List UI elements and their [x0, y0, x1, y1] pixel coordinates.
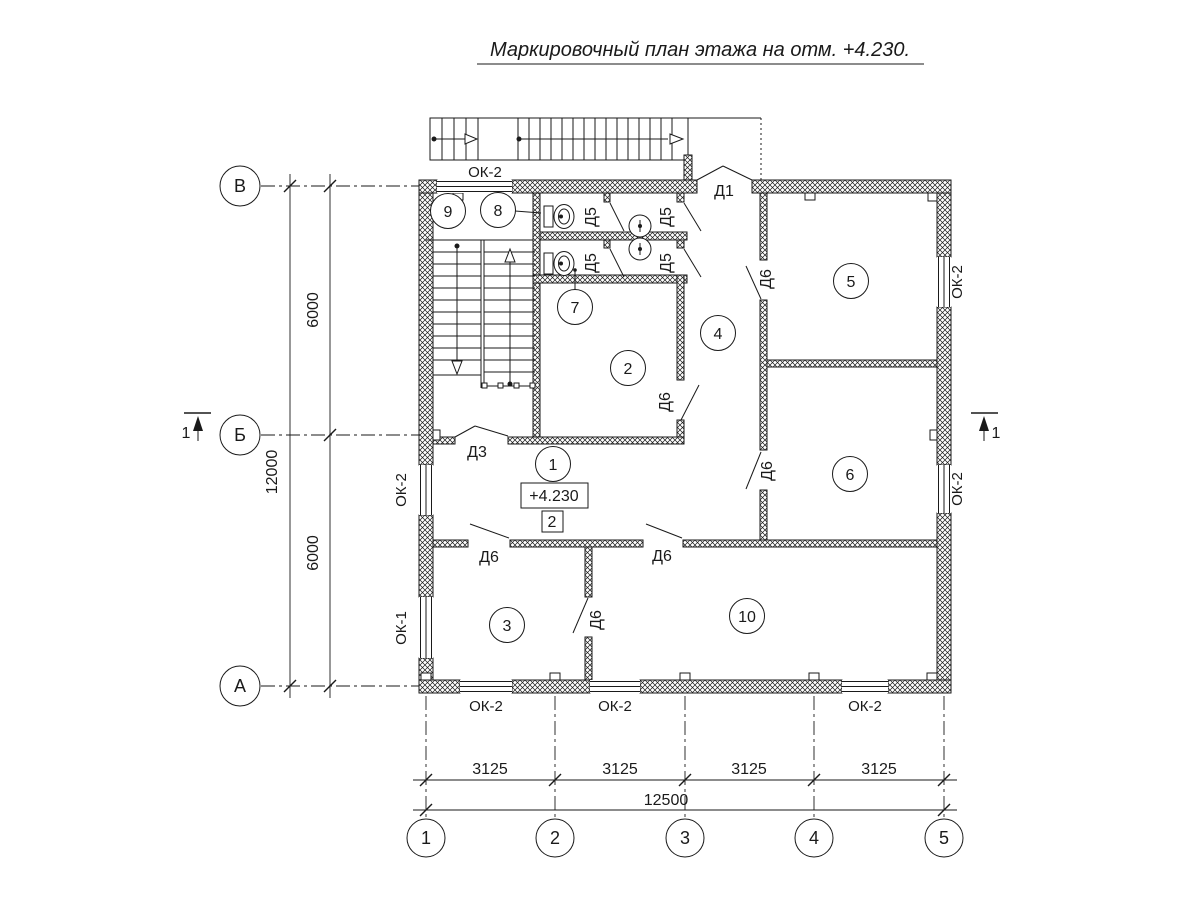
section-mark-right: 1: [971, 413, 1001, 442]
room-marker-2: 2: [611, 351, 646, 386]
dim-h-seg-4: 3125: [861, 761, 897, 778]
dim-vertical-total: 12000: [264, 450, 281, 495]
toilet-upper: [544, 205, 574, 229]
door-d6-room3-top: Д6: [470, 524, 509, 566]
col-axis-label: 2: [550, 828, 560, 848]
window-label-ok2-right-lower: ОК-2: [949, 472, 966, 506]
level-mark: +4.230: [521, 483, 588, 508]
room-marker-6: 6: [833, 457, 868, 492]
room-number: 10: [738, 609, 756, 626]
room-marker-9: 9: [431, 194, 466, 229]
door-label-d5: Д5: [583, 207, 600, 227]
zone-mark-value: 2: [548, 514, 557, 531]
col-axis-bubble-4: 4: [795, 819, 833, 857]
drawing-title: Маркировочный план этажа на отм. +4.230.: [490, 39, 910, 61]
basin-lower: [629, 238, 651, 260]
room-number: 8: [494, 203, 503, 220]
door-label-d6: Д6: [759, 461, 776, 481]
window-ok2-bottom-1: [460, 680, 512, 693]
room-number: 4: [714, 326, 723, 343]
col-axis-label: 1: [421, 828, 431, 848]
door-d1: Д1: [697, 166, 752, 200]
row-axis-bubble-a: А: [220, 666, 260, 706]
zone-mark: 2: [542, 511, 563, 532]
door-label-d5: Д5: [583, 253, 600, 273]
window-ok2-bottom-3: [842, 680, 888, 693]
door-d5-wc-lower-inner: Д5: [583, 249, 624, 277]
room-marker-10: 10: [730, 599, 765, 634]
floor-plan-drawing: Маркировочный план этажа на отм. +4.230.: [0, 0, 1200, 900]
internal-staircase: [426, 240, 535, 388]
floor-plan-page: Маркировочный план этажа на отм. +4.230.: [0, 0, 1200, 900]
room-number: 2: [624, 361, 633, 378]
col-axis-bubble-3: 3: [666, 819, 704, 857]
room-marker-5: 5: [834, 264, 869, 299]
col-axis-label: 4: [809, 828, 819, 848]
internal-stair-treads: [433, 240, 535, 388]
col-axis-bubble-1: 1: [407, 819, 445, 857]
window-ok2-left: [419, 465, 433, 515]
door-label-d6: Д6: [588, 610, 605, 630]
window-label-ok2-left: ОК-2: [393, 473, 410, 507]
row-axis-label: Б: [234, 425, 246, 445]
dim-h-seg-1: 3125: [472, 761, 508, 778]
dim-horizontal-total: 12500: [644, 792, 689, 809]
door-d6-room5: Д6: [746, 266, 775, 299]
window-label-ok2-bottom-2: ОК-2: [598, 698, 632, 715]
room-number: 3: [503, 618, 512, 635]
door-label-d6: Д6: [758, 269, 775, 289]
door-label-d3: Д3: [467, 444, 487, 461]
level-mark-value: +4.230: [529, 488, 578, 505]
room-number: 9: [444, 204, 453, 221]
door-d5-wc-upper-outer: Д5: [658, 203, 701, 231]
col-axis-bubble-5: 5: [925, 819, 963, 857]
door-d6-room6: Д6: [746, 452, 776, 489]
room-marker-8: 8: [481, 193, 542, 228]
window-label-ok2-bottom-1: ОК-2: [469, 698, 503, 715]
window-label-ok1-left: ОК-1: [393, 611, 410, 645]
door-d5-wc-upper-inner: Д5: [583, 203, 624, 231]
window-label-ok2-bottom-3: ОК-2: [848, 698, 882, 715]
door-label-d5: Д5: [658, 207, 675, 227]
section-label: 1: [182, 425, 191, 442]
dim-h-seg-2: 3125: [602, 761, 638, 778]
window-label-ok2-top: ОК-2: [468, 164, 502, 181]
row-axis-bubble-b: Б: [220, 415, 260, 455]
toilet-lower: [544, 252, 574, 276]
col-axis-label: 3: [680, 828, 690, 848]
door-d3: Д3: [455, 426, 508, 461]
door-d6-room10-top: Д6: [646, 524, 682, 565]
row-axis-label: А: [234, 676, 246, 696]
door-label-d6: Д6: [652, 548, 672, 565]
title-block: Маркировочный план этажа на отм. +4.230.: [477, 39, 924, 64]
row-axis-label: В: [234, 176, 246, 196]
window-ok2-bottom-2: [590, 680, 640, 693]
dim-vertical-upper: 6000: [305, 292, 322, 328]
dim-h-seg-3: 3125: [731, 761, 767, 778]
door-d6-room3-right: Д6: [573, 598, 605, 633]
basin-upper: [629, 215, 651, 237]
room-markers: 1 2 3 4 5 6 7 8: [431, 193, 869, 643]
section-label: 1: [992, 425, 1001, 442]
room-marker-1: 1: [536, 447, 571, 482]
room-number: 1: [549, 457, 558, 474]
row-axis-bubble-v: В: [220, 166, 260, 206]
window-label-ok2-right-upper: ОК-2: [949, 265, 966, 299]
dim-vertical-lower: 6000: [305, 535, 322, 571]
door-d6-room2: Д6: [657, 385, 699, 420]
col-axis-label: 5: [939, 828, 949, 848]
window-ok1-left: [419, 597, 433, 658]
col-axis-bubble-2: 2: [536, 819, 574, 857]
door-label-d6: Д6: [479, 549, 499, 566]
room-marker-3: 3: [490, 608, 525, 643]
door-label-d1: Д1: [714, 183, 734, 200]
section-mark-left: 1: [182, 413, 211, 442]
door-label-d5: Д5: [658, 253, 675, 273]
door-d5-wc-lower-outer: Д5: [658, 249, 701, 277]
room-number: 5: [847, 274, 856, 291]
window-ok2-top: [437, 180, 512, 193]
room-marker-4: 4: [701, 316, 736, 351]
door-label-d6: Д6: [657, 392, 674, 412]
porch-wall-stub: [684, 155, 692, 180]
room-number: 7: [571, 300, 580, 317]
room-number: 6: [846, 467, 855, 484]
